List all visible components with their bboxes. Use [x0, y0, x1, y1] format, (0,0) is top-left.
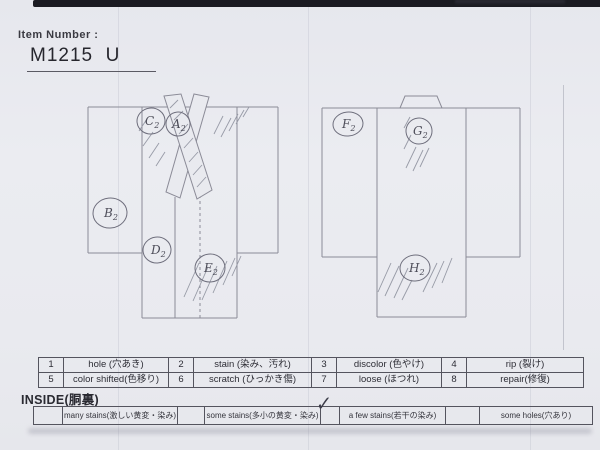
inside-option-label: a few stains(若干の染み): [340, 407, 446, 425]
scan-shadow: [28, 428, 592, 434]
damage-marker-c2: C2: [136, 107, 167, 136]
condition-code-number: 7: [312, 373, 337, 388]
inside-lining-table: many stains(激しい黄変・染み)some stains(多小の黄変・染…: [33, 406, 593, 425]
scanned-condition-report: Item Number : M1215 U: [0, 0, 600, 450]
condition-code-number: 3: [312, 358, 337, 373]
condition-code-label: hole (穴あき): [64, 358, 169, 373]
condition-code-label: loose (ほつれ): [337, 373, 442, 388]
condition-code-number: 8: [442, 373, 467, 388]
condition-code-label: scratch (ひっかき傷): [194, 373, 312, 388]
svg-text:H2: H2: [408, 261, 425, 277]
condition-code-number: 4: [442, 358, 467, 373]
svg-text:E2: E2: [203, 261, 218, 277]
condition-code-label: stain (染み、汚れ): [194, 358, 312, 373]
condition-code-number: 5: [39, 373, 64, 388]
inside-option-label: some holes(穴あり): [480, 407, 593, 425]
svg-text:D2: D2: [150, 243, 166, 259]
condition-code-number: 2: [169, 358, 194, 373]
inside-checkbox-cell: [178, 407, 205, 425]
inside-option-label: some stains(多小の黄変・染み): [205, 407, 321, 425]
back-neckband: [400, 96, 442, 108]
condition-code-label: discolor (色やけ): [337, 358, 442, 373]
condition-code-label: rip (裂け): [467, 358, 584, 373]
condition-table-row: 5color shifted(色移り)6scratch (ひっかき傷)7loos…: [39, 373, 584, 388]
damage-marker-f2: F2: [332, 110, 364, 137]
condition-code-label: color shifted(色移り): [64, 373, 169, 388]
svg-text:G2: G2: [413, 124, 428, 140]
condition-code-table: 1hole (穴あき)2stain (染み、汚れ)3discolor (色やけ)…: [38, 357, 584, 388]
handwritten-checkmark: ✓: [316, 392, 333, 416]
inside-checkbox-cell: [34, 407, 63, 425]
condition-code-label: repair(修復): [467, 373, 584, 388]
condition-table-row: 1hole (穴あき)2stain (染み、汚れ)3discolor (色やけ)…: [39, 358, 584, 373]
condition-code-number: 1: [39, 358, 64, 373]
svg-text:F2: F2: [341, 117, 355, 133]
inside-option-label: many stains(激しい黄変・染み): [63, 407, 178, 425]
damage-markers: C2A2B2D2E2F2G2H2: [92, 107, 434, 284]
damage-marker-e2: E2: [194, 253, 227, 284]
svg-text:B2: B2: [103, 206, 118, 222]
front-damage-hatch-right-shoulder: [214, 107, 249, 137]
damage-marker-g2: G2: [405, 117, 434, 146]
inside-checkbox-cell: [446, 407, 480, 425]
condition-code-number: 6: [169, 373, 194, 388]
damage-marker-b2: B2: [92, 196, 129, 229]
damage-marker-d2: D2: [142, 236, 173, 265]
svg-text:C2: C2: [145, 114, 159, 130]
